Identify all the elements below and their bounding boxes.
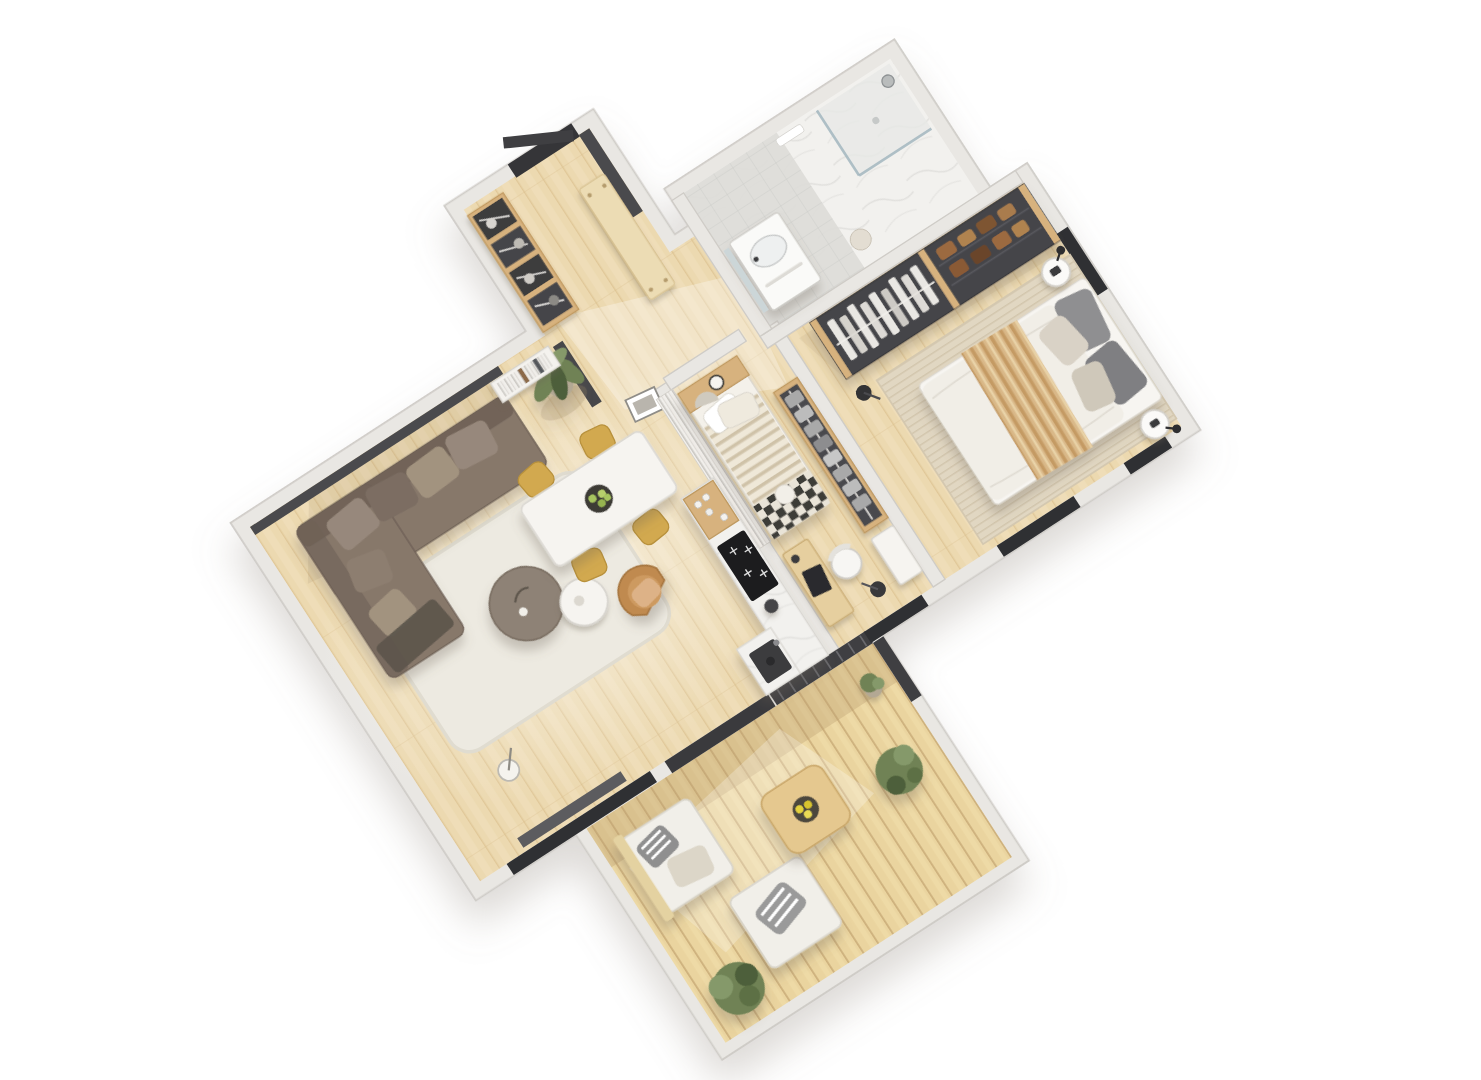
- floor-plan-stage: [0, 0, 1481, 1080]
- floor-plan-canvas: [0, 0, 1481, 1080]
- building: [117, 0, 1346, 1080]
